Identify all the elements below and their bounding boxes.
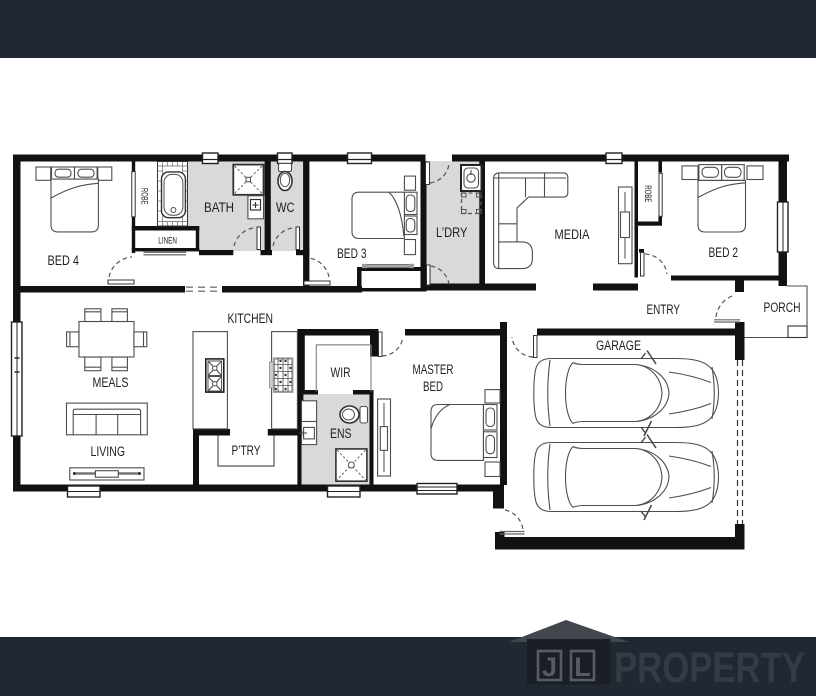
svg-text:GARAGE: GARAGE (596, 338, 641, 353)
svg-text:ROBE: ROBE (139, 188, 150, 205)
svg-text:MASTER: MASTER (413, 362, 454, 377)
svg-text:BED 4: BED 4 (48, 253, 80, 268)
svg-text:ROBE: ROBE (642, 185, 653, 202)
svg-text:PORCH: PORCH (764, 300, 801, 315)
svg-text:WC: WC (276, 200, 295, 215)
svg-text:ENS: ENS (330, 426, 352, 441)
svg-text:KITCHEN: KITCHEN (228, 311, 274, 326)
svg-text:P’TRY: P’TRY (232, 443, 261, 458)
svg-text:L’DRY: L’DRY (436, 225, 468, 240)
svg-text:BED 2: BED 2 (709, 245, 739, 260)
svg-text:MEDIA: MEDIA (555, 227, 590, 242)
svg-text:BED 3: BED 3 (337, 246, 367, 261)
svg-text:BED: BED (423, 379, 443, 394)
svg-text:PROPERTY: PROPERTY (614, 644, 805, 692)
svg-text:J: J (542, 652, 557, 682)
svg-text:WIR: WIR (331, 365, 351, 380)
svg-text:BATH: BATH (204, 200, 234, 215)
svg-text:ENTRY: ENTRY (647, 302, 681, 317)
svg-text:MEALS: MEALS (93, 375, 129, 390)
svg-text:LINEN: LINEN (158, 235, 177, 246)
svg-text:L: L (574, 652, 591, 682)
svg-text:LIVING: LIVING (91, 444, 126, 459)
